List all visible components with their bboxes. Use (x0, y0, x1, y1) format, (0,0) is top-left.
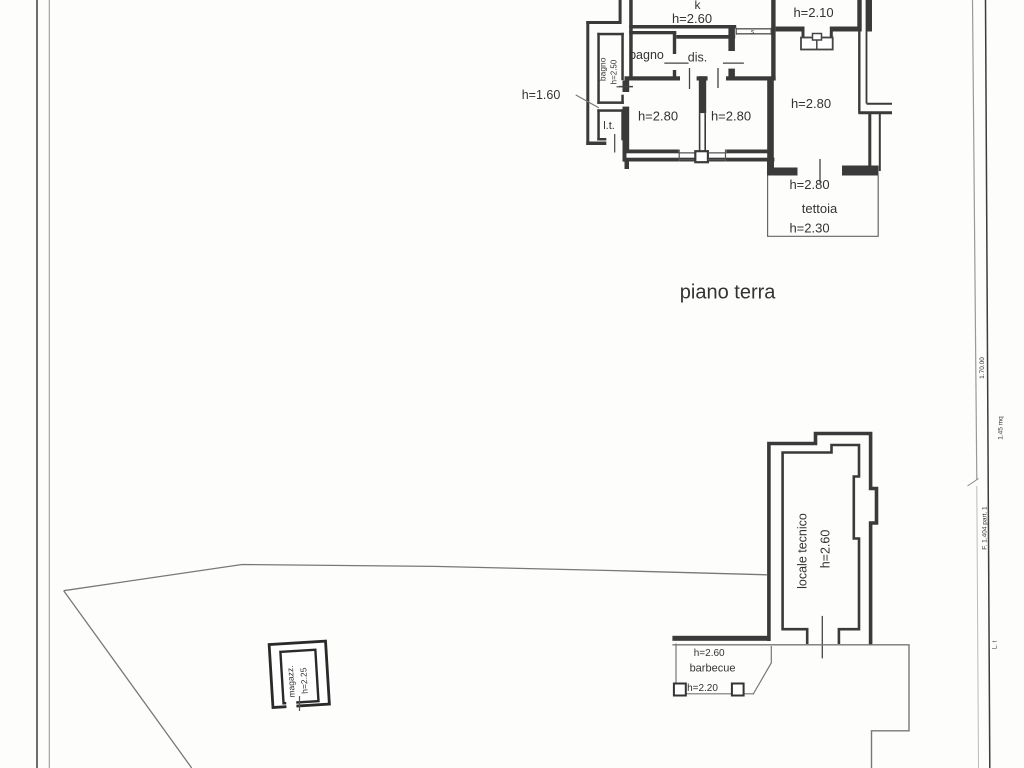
svg-text:bagno: bagno (598, 57, 608, 81)
svg-text:h=1.60: h=1.60 (522, 88, 561, 102)
svg-text:1.45 mq: 1.45 mq (998, 416, 1005, 440)
svg-text:h=2.20: h=2.20 (687, 683, 718, 694)
svg-text:h=2.10: h=2.10 (793, 5, 833, 20)
svg-text:dis.: dis. (688, 51, 707, 65)
svg-text:l.t.: l.t. (603, 120, 615, 132)
svg-text:h=2.80: h=2.80 (791, 96, 831, 111)
svg-text:h=2.50: h=2.50 (610, 59, 619, 84)
svg-text:h=2.25: h=2.25 (298, 667, 310, 694)
svg-text:h=2.80: h=2.80 (638, 109, 678, 124)
svg-text:h=2.80: h=2.80 (711, 109, 751, 124)
svg-text:h=2.60: h=2.60 (672, 11, 712, 26)
svg-text:tettoia: tettoia (802, 201, 838, 216)
svg-text:h=2.60: h=2.60 (819, 530, 833, 569)
svg-text:h=2.30: h=2.30 (789, 221, 829, 236)
svg-text:barbecue: barbecue (690, 663, 736, 675)
svg-text:bagno: bagno (629, 48, 664, 62)
svg-text:F. 1.404 part. 1: F. 1.404 part. 1 (982, 506, 989, 550)
svg-text:s: s (751, 29, 755, 36)
svg-text:locale tecnico: locale tecnico (796, 513, 810, 589)
svg-text:h=2.80: h=2.80 (789, 177, 829, 192)
svg-text:L. t: L. t (993, 641, 999, 650)
svg-text:magazz.: magazz. (285, 665, 297, 698)
svg-text:1.70.00: 1.70.00 (979, 357, 986, 379)
svg-text:h=2.60: h=2.60 (694, 648, 725, 659)
svg-text:piano terra: piano terra (680, 282, 776, 304)
